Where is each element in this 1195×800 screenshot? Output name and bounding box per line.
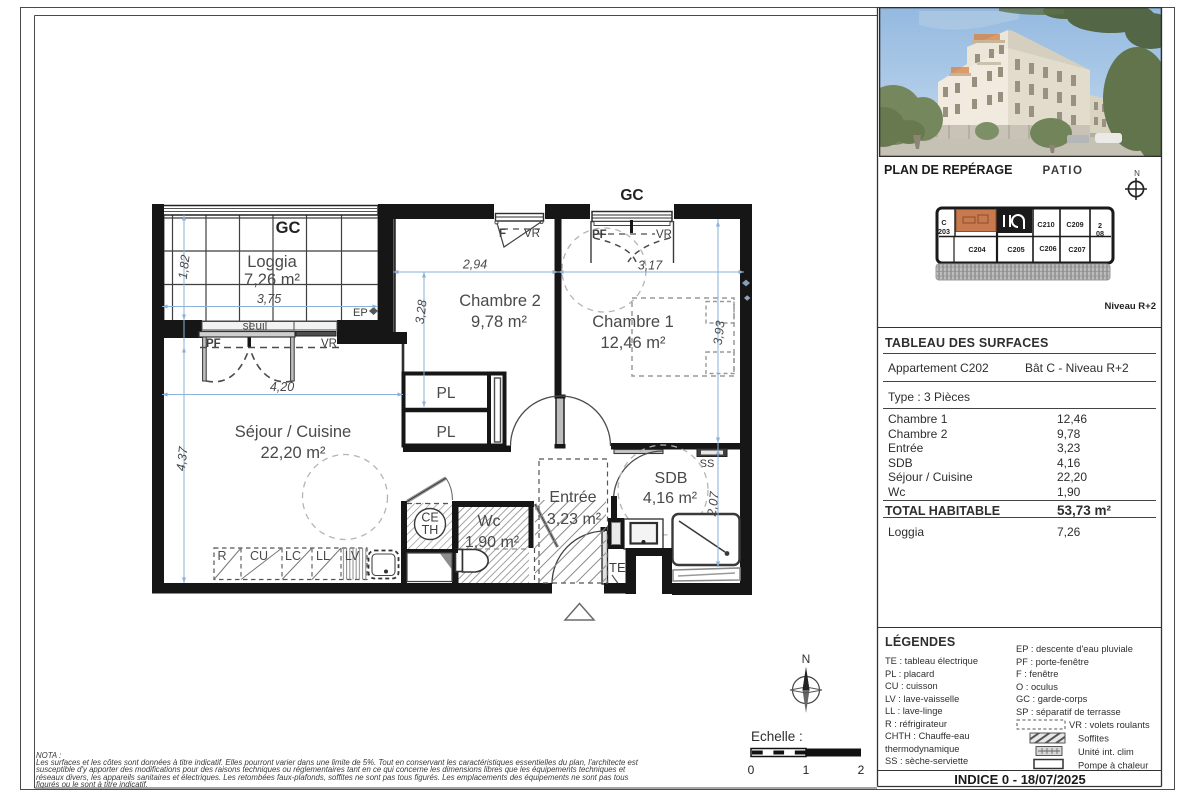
- svg-text:Echelle :: Echelle :: [751, 729, 803, 744]
- svg-text:08: 08: [1096, 229, 1104, 238]
- svg-text:VR: VR: [524, 228, 540, 240]
- svg-text:203: 203: [938, 227, 950, 236]
- svg-text:3,28: 3,28: [413, 299, 430, 325]
- svg-text:Soffites: Soffites: [1078, 734, 1109, 744]
- svg-text:seuil: seuil: [243, 319, 268, 333]
- svg-text:3,93: 3,93: [711, 320, 728, 346]
- svg-text:3,75: 3,75: [257, 292, 281, 306]
- svg-text:3,23 m²: 3,23 m²: [547, 511, 602, 528]
- svg-text:TE: TE: [609, 560, 626, 575]
- svg-text:0: 0: [748, 763, 755, 777]
- svg-text:SDB: SDB: [655, 470, 688, 487]
- svg-text:Loggia: Loggia: [247, 253, 297, 271]
- svg-text:CU: CU: [250, 549, 268, 563]
- svg-text:PF: PF: [206, 338, 221, 350]
- svg-text:C206: C206: [1039, 244, 1056, 253]
- svg-text:9,78 m²: 9,78 m²: [471, 313, 527, 331]
- svg-text:PF: PF: [592, 229, 607, 241]
- svg-text:N: N: [1134, 169, 1140, 178]
- svg-text:1,90 m²: 1,90 m²: [465, 534, 520, 551]
- svg-text:7,26 m²: 7,26 m²: [244, 271, 300, 289]
- svg-text:C207: C207: [1068, 245, 1085, 254]
- svg-text:R: R: [217, 549, 226, 563]
- svg-text:GC: GC: [620, 187, 643, 204]
- svg-text:Wc: Wc: [477, 513, 500, 530]
- svg-text:GC: GC: [276, 219, 301, 237]
- svg-text:VR : volets roulants: VR : volets roulants: [1069, 720, 1150, 730]
- svg-text:12,46 m²: 12,46 m²: [600, 334, 666, 352]
- svg-text:1,82: 1,82: [176, 254, 193, 280]
- svg-text:LC: LC: [285, 549, 301, 563]
- svg-text:C209: C209: [1066, 220, 1083, 229]
- svg-text:2: 2: [858, 763, 865, 777]
- svg-text:C204: C204: [968, 245, 985, 254]
- svg-text:4,20: 4,20: [270, 380, 294, 394]
- svg-text:Séjour / Cuisine: Séjour / Cuisine: [235, 423, 351, 441]
- svg-text:1: 1: [803, 763, 810, 777]
- svg-text:Chambre 2: Chambre 2: [459, 292, 541, 310]
- svg-text:C205: C205: [1007, 245, 1024, 254]
- svg-text:N: N: [802, 652, 811, 666]
- svg-text:VR: VR: [656, 229, 672, 241]
- svg-text:4,16 m²: 4,16 m²: [643, 490, 698, 507]
- svg-text:C: C: [941, 218, 946, 227]
- svg-text:F: F: [499, 228, 506, 240]
- svg-text:PL: PL: [437, 385, 456, 402]
- svg-text:Pompe à chaleur: Pompe à chaleur: [1078, 761, 1148, 771]
- svg-text:2,94: 2,94: [462, 258, 487, 272]
- svg-text:22,20 m²: 22,20 m²: [260, 444, 326, 462]
- svg-text:VR: VR: [321, 338, 337, 350]
- svg-text:SS: SS: [700, 458, 715, 470]
- svg-text:PL: PL: [437, 424, 456, 441]
- svg-text:LL: LL: [316, 549, 330, 563]
- svg-text:Unité int. clim: Unité int. clim: [1078, 747, 1134, 757]
- svg-text:Entrée: Entrée: [549, 489, 596, 506]
- svg-text:EP: EP: [353, 307, 368, 319]
- svg-text:3,17: 3,17: [638, 259, 663, 273]
- svg-text:TH: TH: [422, 523, 439, 537]
- svg-text:Chambre 1: Chambre 1: [592, 313, 674, 331]
- svg-text:C210: C210: [1037, 220, 1054, 229]
- svg-text:4,37: 4,37: [174, 445, 191, 472]
- svg-text:LV: LV: [345, 549, 360, 563]
